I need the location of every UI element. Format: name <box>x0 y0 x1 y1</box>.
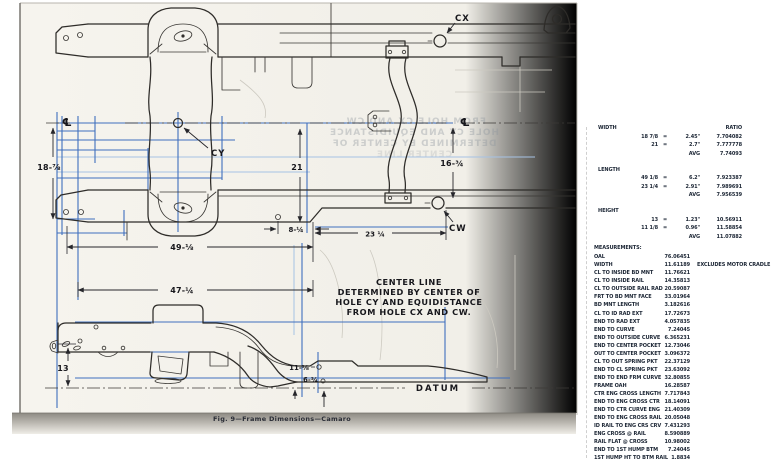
ratio-row: AVG 11.07882 <box>598 233 742 242</box>
measurement-row: CL TO OUT SPRING PKT 22.37129 <box>594 358 770 366</box>
ratio-cell-ratio: 11.07882 <box>700 234 742 240</box>
measurement-name: CL TO ID RAD EXT <box>594 311 662 317</box>
measurement-name: END TO ENG CROSS RAIL <box>594 415 662 421</box>
measurement-name: END TO CENTER POCKET <box>594 343 662 349</box>
ratio-row: 18 7/8 = 2.45" 7.704082 <box>598 133 742 142</box>
ratio-cell-inches: 2.7" <box>672 142 700 148</box>
ratio-cell-inches: 0.96" <box>672 225 700 231</box>
measurement-value: 6.365231 <box>662 335 690 341</box>
ratio-section-label: WIDTH <box>598 125 617 131</box>
measurement-name: END TO CL SPRING PKT <box>594 367 662 373</box>
measurement-row: END TO ENG CROSS CTR 18.14091 <box>594 398 770 406</box>
measurement-value: 7.431293 <box>662 423 690 429</box>
measurement-value: 11.61189 <box>662 262 690 268</box>
ratio-cell-inches: AVG <box>672 234 700 240</box>
measurement-value: 23.63092 <box>662 367 690 373</box>
dim-49-label: 49-⅛ <box>170 243 194 252</box>
measurement-value: 20.05048 <box>662 415 690 421</box>
ratio-cell-measured: 11 1/8 <box>598 225 658 231</box>
measurement-name: FRAME OAH <box>594 383 662 389</box>
measurement-name: END TO 1ST HUMP BTM <box>594 447 662 453</box>
ratio-row: 49 1/8 = 6.2" 7.923387 <box>598 174 742 183</box>
measurement-value: 4.057835 <box>662 319 690 325</box>
measurement-name: END TO END FRM CURVE <box>594 375 662 381</box>
measurement-value: 76.06451 <box>662 254 690 260</box>
measurement-row: RAIL FLAT @ CROSS 10.98002 <box>594 438 770 446</box>
ratio-section-label: LENGTH <box>598 167 620 173</box>
ratio-row: 23 1/4 = 2.91" 7.989691 <box>598 183 742 192</box>
ratio-row: 21 = 2.7" 7.777778 <box>598 141 742 150</box>
measurement-name: CTR ENG CROSS LENGTH <box>594 391 662 397</box>
measurement-row: END TO 1ST HUMP BTM 7.24045 <box>594 446 770 454</box>
dim-16-label: 16-¾ <box>440 159 464 168</box>
measurement-name: 1ST HUMP HT TO BTM RAIL <box>594 455 662 461</box>
measurement-value: 12.73046 <box>662 343 690 349</box>
dim-18-label: 18-⅞ <box>37 163 61 172</box>
ratio-section-width: WIDTH RATIO 18 7/8 = 2.45" 7.704082 21 = <box>598 124 742 158</box>
ratio-cell-ratio: 7.777778 <box>700 142 742 148</box>
measurement-row: OUT TO CENTER POCKET 3.096372 <box>594 350 770 358</box>
frame-dimensions-page: FROM HOLE CX AND CW. HOLE CY AND EQUIDIS… <box>0 0 774 465</box>
measurement-row: END TO ENG CROSS RAIL 20.05048 <box>594 414 770 422</box>
center-note-line-1: CENTER LINE <box>376 277 442 287</box>
ratio-row: 11 1/8 = 0.96" 11.58854 <box>598 224 742 233</box>
ratio-cell-measured: 49 1/8 <box>598 175 658 181</box>
ratio-cell-equals: = <box>658 225 672 231</box>
dim-8-label: 8-¼ <box>288 226 303 234</box>
measurements-table: MEASUREMENTS: OAL 76.06451 WIDTH 11.6118… <box>594 245 770 462</box>
ratio-cell-measured: 18 7/8 <box>598 134 658 140</box>
ratio-cell-measured: 21 <box>598 142 658 148</box>
measurement-note: EXCLUDES MOTOR CRADLE <box>697 262 770 268</box>
measurement-row: WIDTH 11.61189 EXCLUDES MOTOR CRADLE <box>594 261 770 269</box>
measurement-row: FRAME OAH 16.28587 <box>594 382 770 390</box>
measurement-value: 8.590889 <box>662 431 690 437</box>
measurement-name: END TO CURVE <box>594 327 662 333</box>
center-note-line-4: FROM HOLE CX AND CW. <box>347 307 472 317</box>
measurement-name: WIDTH <box>594 262 662 268</box>
ratio-cell-inches: AVG <box>672 192 700 198</box>
hole-cw-label: CW <box>449 224 467 234</box>
ratio-table: WIDTH RATIO 18 7/8 = 2.45" 7.704082 21 = <box>598 124 742 249</box>
measurements-title: MEASUREMENTS: <box>594 245 770 253</box>
ratio-row: AVG 7.956539 <box>598 191 742 200</box>
measurement-name: CL TO INSIDE RAIL <box>594 278 662 284</box>
dim-13-label: 13 <box>57 364 69 373</box>
measurement-name: CL TO INSIDE BD MNT <box>594 270 662 276</box>
ratio-cell-ratio: 7.74093 <box>700 151 742 157</box>
measurement-name: ID RAIL TO ENG CRS CRV <box>594 423 662 429</box>
measurement-name: END TO OUTSIDE CURVE <box>594 335 662 341</box>
ratio-section-height: HEIGHT 13 = 1.23" 10.56911 11 1/8 = 0.96… <box>598 207 742 241</box>
measurement-value: 21.40309 <box>662 407 690 413</box>
measurement-name: END TO RAD EXT <box>594 319 662 325</box>
measurement-row: 1ST HUMP HT TO BTM RAIL 1.8834 <box>594 454 770 462</box>
ratio-cell-measured: 13 <box>598 217 658 223</box>
ratio-cell-inches: 2.45" <box>672 134 700 140</box>
measurement-value: 10.98002 <box>662 439 690 445</box>
ratio-cell-inches: 2.91" <box>672 184 700 190</box>
ratio-cell-equals: = <box>658 217 672 223</box>
figure-caption: Fig. 9—Frame Dimensions—Camaro <box>213 415 351 423</box>
measurement-row: FRT TO BD MNT FACE 33.01964 <box>594 293 770 301</box>
measurement-name: OAL <box>594 254 662 260</box>
dim-21-label: 21 <box>291 163 303 172</box>
measurement-row: OAL 76.06451 <box>594 253 770 261</box>
measurement-name: OUT TO CENTER POCKET <box>594 351 662 357</box>
ratio-cell-equals: = <box>658 184 672 190</box>
measurement-value: 22.37129 <box>662 359 690 365</box>
ratio-cell-equals: = <box>658 142 672 148</box>
measurement-row: CL TO OUTSIDE RAIL RAD 20.59087 <box>594 285 770 293</box>
measurement-row: CL TO INSIDE BD MNT 11.76621 <box>594 269 770 277</box>
measurement-value: 20.59087 <box>662 286 690 292</box>
measurement-row: END TO CENTER POCKET 12.73046 <box>594 342 770 350</box>
dim-23-label: 23 ¼ <box>365 231 384 239</box>
measurement-name: END TO CTR CURVE ENG <box>594 407 662 413</box>
ratio-row: AVG 7.74093 <box>598 150 742 159</box>
measurement-value: 7.24045 <box>662 447 690 453</box>
center-note-line-3: HOLE CY AND EQUIDISTANCE <box>335 297 482 307</box>
measurement-name: CL TO OUT SPRING PKT <box>594 359 662 365</box>
measurement-value: 3.182616 <box>662 302 690 308</box>
measurement-value: 7.24045 <box>662 327 690 333</box>
ghost-line-3: DETERMINED BY CENTER OF <box>332 139 497 149</box>
measurement-row: END TO END FRM CURVE 32.80855 <box>594 374 770 382</box>
ratio-cell-measured: 23 1/4 <box>598 184 658 190</box>
centerline-symbol-left: ℄ <box>62 116 72 129</box>
dim-11-label: 11-⅛ <box>289 364 309 372</box>
measurement-value: 17.72673 <box>662 311 690 317</box>
calc-panel: WIDTH RATIO 18 7/8 = 2.45" 7.704082 21 = <box>584 0 774 465</box>
measurement-name: END TO ENG CROSS CTR <box>594 399 662 405</box>
ratio-cell-equals: = <box>658 175 672 181</box>
ratio-section-label: HEIGHT <box>598 208 619 214</box>
measurement-row: CTR ENG CROSS LENGTH 7.717843 <box>594 390 770 398</box>
measurement-row: ENG CROSS @ RAIL 8.590889 <box>594 430 770 438</box>
ratio-cell-ratio: 10.56911 <box>700 217 742 223</box>
measurement-name: FRT TO BD MNT FACE <box>594 294 662 300</box>
ratio-cell-inches: 6.2" <box>672 175 700 181</box>
measurement-value: 18.14091 <box>662 399 690 405</box>
measurement-value: 33.01964 <box>662 294 690 300</box>
measurement-name: RAIL FLAT @ CROSS <box>594 439 662 445</box>
hole-cx-label: CX <box>455 14 470 24</box>
ratio-cell-inches: AVG <box>672 151 700 157</box>
measurement-value: 7.717843 <box>662 391 690 397</box>
measurement-row: BD MNT LENGTH 3.182616 <box>594 301 770 309</box>
measurement-value: 14.35813 <box>662 278 690 284</box>
measurement-row: CL TO ID RAD EXT 17.72673 <box>594 310 770 318</box>
hole-cy-label: CY <box>211 149 225 159</box>
datum-label: DATUM <box>416 384 460 394</box>
measurement-row: CL TO INSIDE RAIL 14.35813 <box>594 277 770 285</box>
ratio-cell-inches: 1.23" <box>672 217 700 223</box>
center-note-line-2: DETERMINED BY CENTER OF <box>338 287 481 297</box>
dim-6-label: 6-¾ <box>303 376 318 384</box>
ratio-cell-ratio: 7.989691 <box>700 184 742 190</box>
measurement-name: BD MNT LENGTH <box>594 302 662 308</box>
ratio-section-length: LENGTH 49 1/8 = 6.2" 7.923387 23 1/4 = 2… <box>598 166 742 200</box>
measurement-row: ID RAIL TO ENG CRS CRV 7.431293 <box>594 422 770 430</box>
ratio-cell-ratio: 11.58854 <box>700 225 742 231</box>
ratio-cell-ratio: 7.956539 <box>700 192 742 198</box>
measurement-row: END TO CL SPRING PKT 23.63092 <box>594 366 770 374</box>
measurement-row: END TO CURVE 7.24045 <box>594 326 770 334</box>
ratio-row: 13 = 1.23" 10.56911 <box>598 216 742 225</box>
measurement-value: 32.80855 <box>662 375 690 381</box>
measurement-value: 16.28587 <box>662 383 690 389</box>
measurement-value: 1.8834 <box>662 455 690 461</box>
measurement-row: END TO RAD EXT 4.057835 <box>594 318 770 326</box>
scan-edge-line <box>586 127 587 458</box>
centerline-symbol-right: ℄ <box>460 116 470 129</box>
caption-bar: Fig. 9—Frame Dimensions—Camaro <box>12 413 576 434</box>
measurement-row: END TO CTR CURVE ENG 21.40309 <box>594 406 770 414</box>
measurement-name: ENG CROSS @ RAIL <box>594 431 662 437</box>
measurement-row: END TO OUTSIDE CURVE 6.365231 <box>594 334 770 342</box>
measurement-value: 11.76621 <box>662 270 690 276</box>
dim-47-label: 47-¼ <box>170 285 194 295</box>
ratio-cell-equals: = <box>658 134 672 140</box>
ratio-cell-ratio: 7.704082 <box>700 134 742 140</box>
ratio-cell-ratio: 7.923387 <box>700 175 742 181</box>
measurement-value: 3.096372 <box>662 351 690 357</box>
ratio-header: RATIO <box>726 125 742 131</box>
measurement-name: CL TO OUTSIDE RAIL RAD <box>594 286 662 292</box>
